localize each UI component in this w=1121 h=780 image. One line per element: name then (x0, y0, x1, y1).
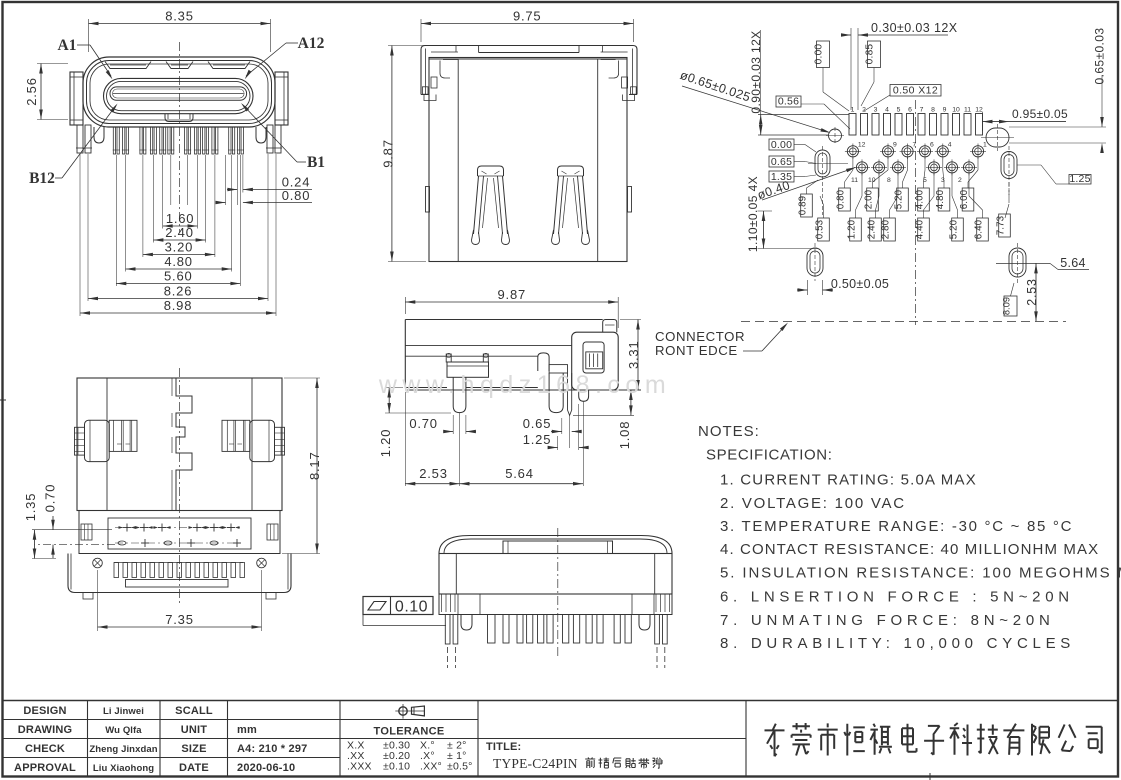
svg-text:1.25: 1.25 (1069, 173, 1090, 185)
svg-text:5. INSULATION RESISTANCE: 100: 5. INSULATION RESISTANCE: 100 MEGOHMS MI… (720, 565, 1121, 582)
svg-text:SCALL: SCALL (175, 705, 213, 717)
svg-text:2.53: 2.53 (1025, 278, 1039, 306)
svg-text:3.20: 3.20 (165, 240, 194, 255)
svg-text:0.70: 0.70 (409, 416, 438, 431)
svg-text:5.20: 5.20 (893, 189, 904, 209)
svg-text:2020-06-10: 2020-06-10 (237, 762, 295, 774)
svg-text:DESIGN: DESIGN (23, 705, 66, 717)
svg-text:2.53: 2.53 (419, 466, 448, 481)
svg-text:2.40: 2.40 (165, 225, 194, 240)
svg-text:TITLE:: TITLE: (486, 741, 521, 753)
svg-text:A12: A12 (298, 35, 325, 52)
svg-text:8.35: 8.35 (165, 9, 194, 24)
svg-text:1.08: 1.08 (617, 421, 632, 450)
svg-text:5.64: 5.64 (505, 466, 534, 481)
svg-text:Liu Xiaohong: Liu Xiaohong (93, 763, 154, 774)
svg-text:0.65: 0.65 (771, 156, 792, 168)
svg-text:0.89: 0.89 (797, 196, 808, 215)
svg-text:2.80: 2.80 (880, 219, 891, 239)
svg-text:9.87: 9.87 (380, 139, 395, 168)
svg-text:4.40: 4.40 (914, 219, 925, 239)
svg-text:12: 12 (858, 142, 866, 149)
svg-text:4.80: 4.80 (164, 254, 193, 269)
svg-text:SPECIFICATION:: SPECIFICATION: (706, 447, 832, 464)
svg-text:12: 12 (975, 107, 983, 114)
svg-text:A1: A1 (58, 37, 77, 54)
svg-text:5: 5 (897, 107, 901, 114)
svg-text:1.60: 1.60 (166, 211, 195, 226)
svg-text:0.56: 0.56 (778, 96, 799, 108)
svg-text:CHECK: CHECK (25, 743, 65, 755)
svg-text:0.30±0.03 12X: 0.30±0.03 12X (871, 21, 958, 35)
svg-text:0.00: 0.00 (814, 44, 825, 65)
svg-text:9: 9 (943, 107, 947, 114)
svg-text:8: 8 (887, 177, 891, 184)
svg-text:10: 10 (952, 107, 960, 114)
svg-text:4. CONTACT RESISTANCE: 40 MILL: 4. CONTACT RESISTANCE: 40 MILLIONHM MAX (720, 541, 1099, 558)
svg-text:1.20: 1.20 (846, 219, 857, 239)
svg-text:9.75: 9.75 (513, 9, 542, 24)
svg-text:NOTES:: NOTES: (698, 423, 760, 440)
svg-text:8.17: 8.17 (307, 451, 322, 480)
svg-text:2.40: 2.40 (866, 219, 877, 239)
svg-text:0.80: 0.80 (835, 189, 846, 209)
svg-text:0.53: 0.53 (814, 219, 825, 239)
svg-text:SIZE: SIZE (181, 743, 206, 755)
svg-text:Zheng Jinxdan: Zheng Jinxdan (89, 744, 157, 755)
svg-text:1.10±0.05 4X: 1.10±0.05 4X (746, 176, 760, 252)
svg-text:5.64: 5.64 (1060, 256, 1086, 270)
svg-text:6: 6 (930, 142, 934, 149)
svg-text:A4: 210 * 297: A4: 210 * 297 (237, 743, 307, 755)
svg-text:0.95±0.05: 0.95±0.05 (1012, 107, 1068, 121)
svg-text:9.87: 9.87 (498, 287, 527, 302)
svg-text:1: 1 (983, 142, 987, 149)
svg-text:0.50 X12: 0.50 X12 (893, 85, 938, 97)
svg-text:8.09: 8.09 (1001, 297, 1011, 315)
svg-text:5.20: 5.20 (948, 219, 959, 239)
svg-text:B1: B1 (307, 154, 325, 171)
svg-text:7.73: 7.73 (995, 215, 1006, 235)
svg-text:3: 3 (941, 177, 945, 184)
svg-text:www.hqdz168.com: www.hqdz168.com (378, 371, 671, 399)
svg-text:0.70: 0.70 (43, 484, 58, 513)
svg-text:2. VOLTAGE: 100 VAC: 2. VOLTAGE: 100 VAC (720, 495, 906, 512)
svg-text:7.35: 7.35 (165, 612, 194, 627)
svg-text:2.00: 2.00 (863, 189, 874, 209)
svg-text:11: 11 (851, 177, 858, 184)
svg-text:0.85: 0.85 (865, 44, 876, 65)
svg-text:0.65: 0.65 (523, 416, 552, 431)
svg-text:1.35: 1.35 (23, 493, 38, 522)
svg-text:B12: B12 (29, 170, 55, 187)
svg-text:1.20: 1.20 (378, 429, 393, 458)
svg-text:3.31: 3.31 (626, 340, 641, 369)
svg-text:DATE: DATE (179, 762, 209, 774)
svg-text:4.00: 4.00 (914, 189, 925, 209)
svg-text:Li Jinwei: Li Jinwei (103, 706, 144, 717)
svg-text:.XX°: .XX° (420, 761, 442, 773)
svg-text:RONT EDCE: RONT EDCE (655, 343, 738, 358)
svg-text:6. LNSERTION FORCE : 5N~20N: 6. LNSERTION FORCE : 5N~20N (720, 589, 1074, 606)
svg-text:7: 7 (920, 107, 924, 114)
svg-text:11: 11 (964, 107, 971, 114)
svg-text:.XXX: .XXX (347, 761, 372, 773)
svg-text:±0.10: ±0.10 (383, 761, 410, 773)
svg-text:4: 4 (885, 107, 889, 114)
svg-text:CONNECTOR: CONNECTOR (655, 329, 745, 344)
svg-text:0.10: 0.10 (395, 599, 428, 616)
svg-text:9: 9 (893, 142, 897, 149)
svg-text:2: 2 (958, 177, 962, 184)
svg-text:UNIT: UNIT (181, 724, 208, 736)
svg-text:7: 7 (913, 142, 917, 149)
svg-text:8.26: 8.26 (164, 284, 193, 299)
svg-text:TOLERANCE: TOLERANCE (374, 726, 445, 738)
svg-text:1. CURRENT RATING: 5.0A MAX: 1. CURRENT RATING: 5.0A MAX (720, 472, 977, 489)
svg-text:TYPE-C24PIN: TYPE-C24PIN (493, 756, 578, 771)
svg-text:0.65±0.03: 0.65±0.03 (1093, 28, 1107, 85)
svg-text:8.98: 8.98 (164, 298, 193, 313)
svg-text:2.56: 2.56 (24, 77, 39, 106)
svg-text:6.40: 6.40 (973, 219, 984, 239)
svg-text:6: 6 (908, 107, 912, 114)
svg-text:8: 8 (931, 107, 935, 114)
svg-text:1.25: 1.25 (523, 432, 552, 447)
svg-text:±0.5°: ±0.5° (447, 761, 473, 773)
svg-text:0.50±0.05: 0.50±0.05 (831, 277, 889, 291)
svg-text:0.90±0.03 12X: 0.90±0.03 12X (749, 30, 763, 113)
svg-text:5.60: 5.60 (164, 269, 193, 284)
svg-text:0.80: 0.80 (282, 188, 311, 203)
svg-text:4: 4 (948, 142, 952, 149)
svg-text:Wu Qlfa: Wu Qlfa (105, 725, 142, 736)
svg-text:3: 3 (874, 107, 878, 114)
svg-text:3. TEMPERATURE RANGE: -30 °C ~: 3. TEMPERATURE RANGE: -30 °C ~ 85 °C (720, 518, 1073, 535)
svg-text:0.00: 0.00 (771, 139, 792, 151)
svg-text:APPROVAL: APPROVAL (14, 762, 76, 774)
svg-text:6.00: 6.00 (959, 189, 970, 209)
svg-text:7. UNMATING FORCE: 8N~20N: 7. UNMATING FORCE: 8N~20N (720, 612, 1055, 629)
svg-text:DRAWING: DRAWING (18, 724, 73, 736)
svg-text:8. DURABILITY: 10,000 CYCLES: 8. DURABILITY: 10,000 CYCLES (720, 635, 1075, 652)
svg-text:4.80: 4.80 (935, 189, 946, 209)
svg-text:mm: mm (237, 724, 257, 736)
